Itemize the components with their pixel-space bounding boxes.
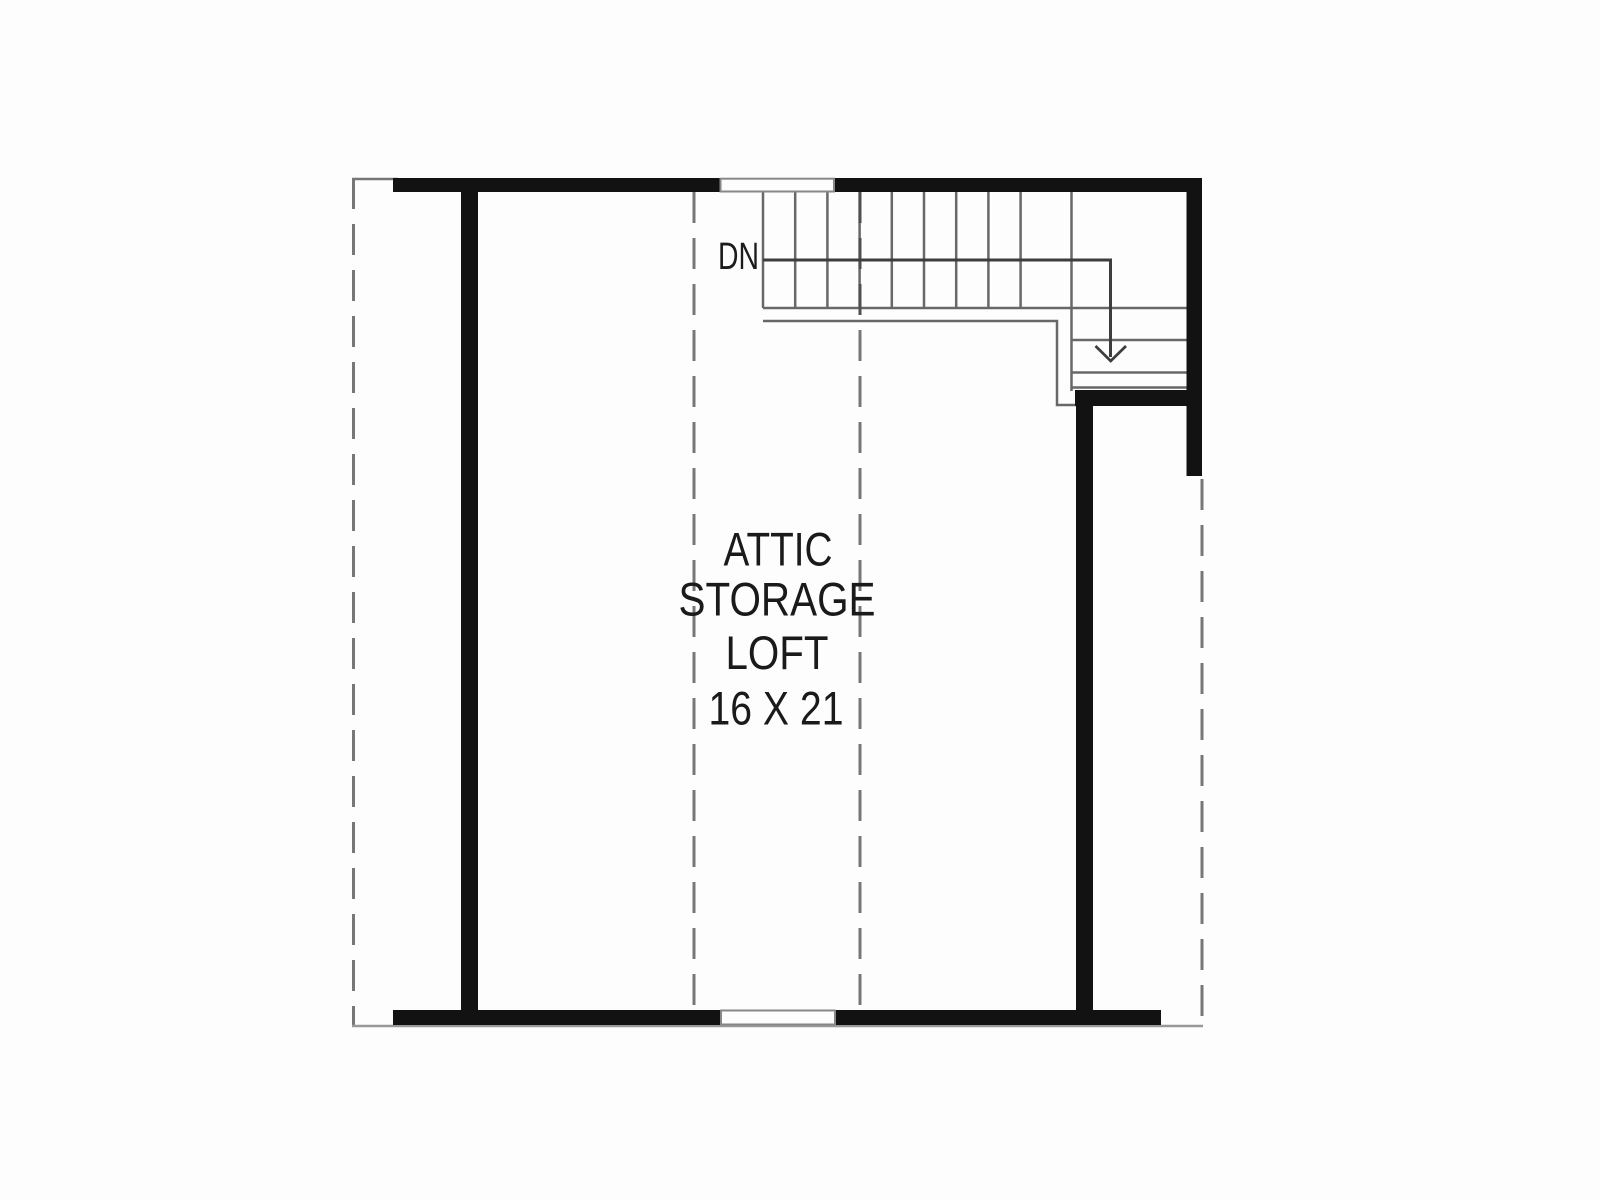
svg-text:16 X 21: 16 X 21 — [709, 682, 844, 735]
svg-text:STORAGE: STORAGE — [679, 573, 876, 626]
svg-text:DN: DN — [718, 236, 759, 278]
svg-text:LOFT: LOFT — [726, 626, 829, 679]
svg-text:ATTIC: ATTIC — [724, 523, 833, 576]
